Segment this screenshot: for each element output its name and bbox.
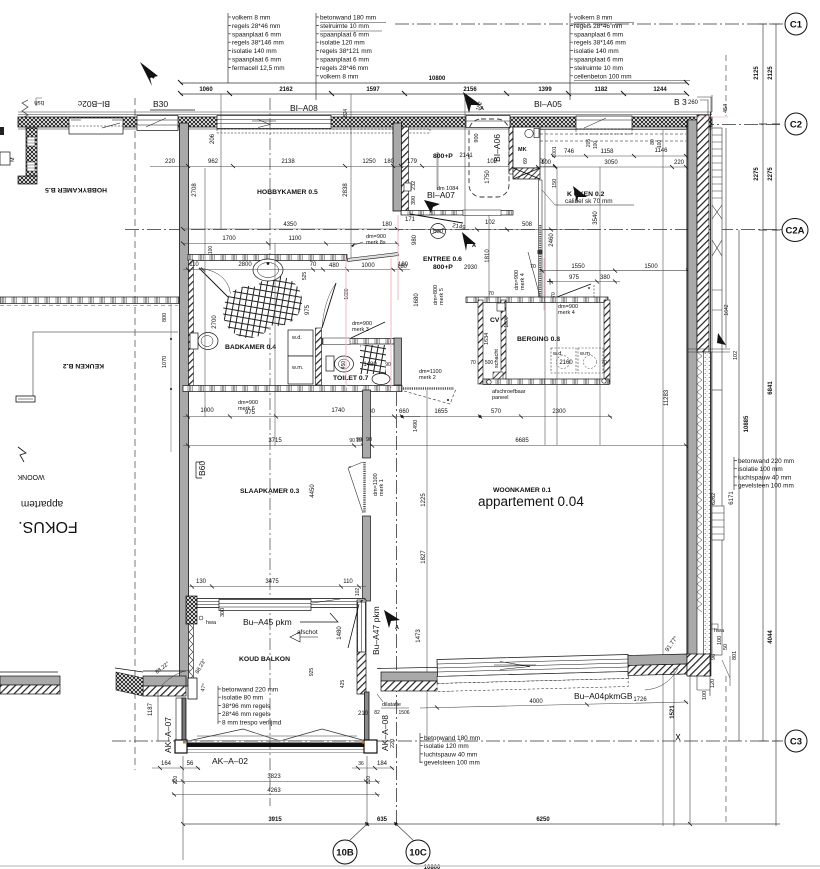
svg-text:180: 180 [384,159,395,165]
svg-text:2300: 2300 [552,409,566,415]
svg-text:746: 746 [564,149,575,155]
svg-text:BI–A06: BI–A06 [492,134,502,162]
svg-text:164: 164 [161,761,172,767]
svg-text:82: 82 [374,710,380,716]
svg-text:BI–A05: BI–A05 [534,99,562,109]
svg-text:100: 100 [541,160,552,166]
svg-text:M: M [10,157,16,162]
svg-text:afschot: afschot [297,629,318,636]
svg-text:schacht: schacht [494,349,500,368]
svg-text:3715: 3715 [268,438,282,444]
svg-text:70: 70 [530,264,536,270]
svg-text:HOBBYKAMER B.5: HOBBYKAMER B.5 [45,186,107,193]
svg-text:FOKUS.: FOKUS. [18,518,78,535]
svg-text:spaanplaat 6 mm: spaanplaat 6 mm [320,57,369,64]
svg-text:6171: 6171 [729,491,735,505]
svg-text:1490: 1490 [413,420,419,432]
svg-text:merk 8s: merk 8s [366,240,386,246]
svg-text:38*96 mm regels: 38*96 mm regels [222,703,270,710]
svg-text:A: A [472,243,476,249]
svg-text:w.d.: w.d. [291,335,302,341]
svg-text:appartem: appartem [21,498,63,509]
svg-text:KOUD BALKON: KOUD BALKON [239,656,290,663]
svg-text:220: 220 [674,160,685,166]
svg-text:regels 38*146 mm: regels 38*146 mm [232,40,284,47]
svg-text:AK–A–07: AK–A–07 [163,717,173,753]
svg-text:3915: 3915 [268,817,282,823]
svg-text:1000: 1000 [200,408,214,414]
svg-text:appartement 0.04: appartement 0.04 [478,494,584,509]
svg-text:w.m.: w.m. [579,351,592,357]
svg-text:dm 1084: dm 1084 [437,186,458,192]
svg-text:4350: 4350 [283,222,297,228]
svg-text:801: 801 [732,651,738,660]
svg-text:205: 205 [586,139,592,148]
svg-text:1634: 1634 [484,333,490,345]
svg-text:1399: 1399 [538,87,552,93]
svg-text:1827: 1827 [421,550,427,564]
svg-text:660: 660 [399,409,410,415]
svg-text:BERGING 0.8: BERGING 0.8 [517,336,560,343]
svg-text:70: 70 [601,360,607,366]
svg-text:56: 56 [187,761,194,767]
svg-text:570: 570 [491,409,502,415]
svg-text:2162: 2162 [279,87,293,93]
svg-text:2141: 2141 [459,153,473,159]
svg-text:824: 824 [343,109,349,118]
svg-text:dilatatie: dilatatie [382,702,401,708]
svg-text:1500: 1500 [644,264,658,270]
svg-text:69: 69 [523,158,529,164]
svg-text:184: 184 [377,761,388,767]
svg-text:6685: 6685 [515,438,529,444]
svg-text:180: 180 [382,222,393,228]
svg-text:1158: 1158 [601,149,615,155]
svg-text:volkern 8 mm: volkern 8 mm [232,15,270,22]
svg-text:2930: 2930 [464,265,478,271]
svg-text:stelruimte 10 mm: stelruimte 10 mm [574,65,623,72]
svg-text:1473: 1473 [416,629,422,643]
svg-text:MK: MK [518,147,527,153]
svg-text:3050: 3050 [604,160,618,166]
svg-text:C1: C1 [790,20,803,31]
svg-text:1800: 1800 [504,316,510,327]
svg-text:980: 980 [412,234,418,245]
svg-text:90: 90 [385,362,391,368]
svg-text:1700: 1700 [222,236,236,242]
svg-text:1655: 1655 [434,409,448,415]
svg-text:1100: 1100 [289,236,303,242]
svg-text:900: 900 [474,133,480,142]
svg-text:1680: 1680 [344,288,350,299]
svg-text:isolatie 120 mm: isolatie 120 mm [320,40,365,47]
svg-text:220: 220 [173,776,179,785]
svg-text:w.m.: w.m. [291,365,304,371]
svg-text:50: 50 [723,644,729,650]
svg-text:96: 96 [711,654,717,660]
svg-text:1506: 1506 [398,710,409,716]
svg-text:28*46 mm regels: 28*46 mm regels [222,711,270,718]
svg-text:1597: 1597 [366,87,380,93]
svg-text:volkern 8 mm: volkern 8 mm [574,15,612,22]
svg-text:bsh: bsh [34,99,44,105]
svg-text:10B: 10B [336,848,354,859]
svg-text:CV: CV [490,317,500,324]
svg-text:1244: 1244 [653,87,667,93]
svg-text:regels 28*46 mm: regels 28*46 mm [574,23,622,30]
svg-text:102: 102 [733,351,739,360]
svg-text:220: 220 [165,159,176,165]
svg-text:gevelsteen 100 mm: gevelsteen 100 mm [738,483,794,490]
svg-text:isolatie 120 mm: isolatie 120 mm [424,743,469,750]
svg-text:B60: B60 [197,461,207,476]
svg-text:179: 179 [407,159,418,165]
svg-text:1187: 1187 [148,702,154,716]
svg-text:spaanplaat 6 mm: spaanplaat 6 mm [232,31,281,38]
svg-text:hwa: hwa [206,620,217,626]
svg-text:2125: 2125 [754,66,760,80]
svg-text:800+P: 800+P [433,153,453,160]
svg-text:180: 180 [398,262,409,268]
svg-text:1480: 1480 [363,362,377,368]
svg-text:100: 100 [657,140,663,149]
svg-text:C3: C3 [790,737,802,748]
svg-text:isolatie 140 mm: isolatie 140 mm [232,48,277,55]
svg-text:spaanplaat 6 mm: spaanplaat 6 mm [574,57,623,64]
svg-text:4263: 4263 [267,788,281,794]
svg-text:100: 100 [717,636,723,645]
svg-text:2708: 2708 [192,183,198,197]
svg-text:1521: 1521 [670,705,676,719]
svg-text:merk 4: merk 4 [520,273,526,290]
svg-text:80: 80 [650,139,656,145]
svg-text:paneel: paneel [492,395,509,401]
svg-text:2275: 2275 [754,167,760,181]
svg-text:36: 36 [358,761,364,767]
svg-text:spaanplaat 6 mm: spaanplaat 6 mm [320,31,369,38]
svg-text:merk 2: merk 2 [419,375,436,381]
svg-text:4000: 4000 [529,699,543,705]
svg-text:206: 206 [210,133,216,144]
svg-text:2275: 2275 [768,167,774,181]
svg-text:regels 28*46 mm: regels 28*46 mm [320,65,368,72]
svg-text:betonwand 220 mm: betonwand 220 mm [222,687,278,694]
svg-text:regels 38*146 mm: regels 38*146 mm [574,40,626,47]
svg-text:102: 102 [355,588,361,597]
svg-text:regels 28*46 mm: regels 28*46 mm [232,23,280,30]
svg-text:AK–A–02: AK–A–02 [212,756,248,766]
svg-text:10885: 10885 [744,415,750,432]
svg-text:1060: 1060 [199,87,213,93]
svg-text:380: 380 [600,275,611,281]
svg-text:232: 232 [411,181,417,190]
svg-text:WOONKAMER 0.1: WOONKAMER 0.1 [493,487,551,494]
svg-text:HOBBYKAMER 0.5: HOBBYKAMER 0.5 [257,189,318,196]
svg-text:C2: C2 [790,120,802,131]
svg-text:gevelsteen 100 mm: gevelsteen 100 mm [424,760,480,767]
svg-text:975: 975 [305,304,311,315]
svg-text:merk 4: merk 4 [558,310,575,316]
svg-text:120: 120 [710,679,716,688]
svg-text:300: 300 [220,608,226,617]
svg-text:SLAAPKAMER 0.3: SLAAPKAMER 0.3 [240,488,300,495]
svg-text:90: 90 [356,437,362,443]
svg-text:500: 500 [485,360,494,366]
svg-text:800: 800 [162,313,168,322]
svg-text:betonwand 180 mm: betonwand 180 mm [424,735,480,742]
svg-text:C2A: C2A [785,226,804,237]
svg-text:2125: 2125 [768,66,774,80]
svg-text:merk 6: merk 6 [238,406,255,412]
svg-text:Bu–A45 pkm: Bu–A45 pkm [243,617,292,627]
svg-text:210: 210 [358,711,369,717]
svg-text:BADKAMER 0.4: BADKAMER 0.4 [225,344,276,351]
svg-text:volkern 8 mm: volkern 8 mm [320,73,358,80]
svg-text:1070: 1070 [162,356,168,368]
svg-text:3540: 3540 [593,211,599,225]
svg-text:1480: 1480 [337,626,343,640]
svg-text:isolatie 140 mm: isolatie 140 mm [574,48,619,55]
svg-text:1740: 1740 [331,408,345,414]
svg-text:1680: 1680 [414,293,420,307]
svg-text:70: 70 [470,360,476,366]
svg-text:merk 1: merk 1 [379,479,385,496]
svg-text:1550: 1550 [571,264,585,270]
svg-text:B30: B30 [153,99,168,109]
svg-text:2800: 2800 [238,262,252,268]
svg-text:B 3: B 3 [674,97,687,107]
svg-text:2838: 2838 [343,183,349,197]
svg-text:100: 100 [702,691,708,700]
svg-text:3823: 3823 [267,774,281,780]
svg-text:cellenbeton 100 mm: cellenbeton 100 mm [574,73,632,80]
svg-text:260: 260 [688,100,699,106]
svg-text:10800: 10800 [429,76,446,82]
svg-text:A: A [395,625,399,631]
svg-text:TOILET 0.7: TOILET 0.7 [333,375,369,382]
svg-text:stelruimte 10 mm: stelruimte 10 mm [320,23,369,30]
svg-text:2460: 2460 [549,233,555,247]
svg-text:508: 508 [522,222,533,228]
svg-text:3475: 3475 [265,579,279,585]
svg-text:spaanplaat 6 mm: spaanplaat 6 mm [574,31,623,38]
svg-text:w.d.: w.d. [552,351,563,357]
svg-text:4044: 4044 [768,630,774,644]
svg-text:635: 635 [377,817,388,823]
svg-text:480: 480 [329,263,340,269]
svg-text:isolatie 100 mm: isolatie 100 mm [738,466,783,473]
svg-text:2160: 2160 [559,360,573,366]
svg-text:2138: 2138 [281,159,295,165]
svg-text:800+P: 800+P [433,264,453,271]
svg-text:390: 390 [411,196,417,205]
svg-text:70: 70 [310,262,317,268]
svg-text:1000: 1000 [361,263,375,269]
svg-text:6841: 6841 [768,381,774,395]
svg-text:171: 171 [405,217,416,223]
svg-text:WOONK: WOONK [17,473,45,480]
svg-text:110: 110 [189,262,199,268]
svg-text:130: 130 [196,579,207,585]
svg-text:luchtspauw 40 mm: luchtspauw 40 mm [738,474,791,481]
svg-text:2156: 2156 [463,87,477,93]
svg-text:454: 454 [723,104,729,113]
svg-text:betonwand 180 mm: betonwand 180 mm [320,15,376,22]
svg-text:1250: 1250 [362,159,376,165]
svg-text:AK–A–08: AK–A–08 [380,715,390,751]
svg-text:betonwand 220 mm: betonwand 220 mm [738,458,794,465]
svg-text:luchtspauw 40 mm: luchtspauw 40 mm [424,751,477,758]
svg-text:8 mm trespo verlijmd: 8 mm trespo verlijmd [222,719,282,726]
svg-text:102: 102 [485,220,496,226]
svg-text:4450: 4450 [310,484,316,498]
svg-text:B30: B30 [433,229,443,235]
svg-text:fermacell 12,5 mm: fermacell 12,5 mm [232,65,285,72]
svg-text:ENTREE 0.6: ENTREE 0.6 [423,256,462,263]
svg-text:6262: 6262 [711,493,717,505]
svg-text:2700: 2700 [212,315,218,329]
svg-text:925: 925 [309,668,315,677]
svg-text:merk 3: merk 3 [352,327,369,333]
svg-text:90: 90 [366,437,372,443]
svg-text:525: 525 [302,272,308,281]
svg-text:1182: 1182 [594,87,608,93]
svg-text:1726: 1726 [633,697,647,703]
svg-text:1225: 1225 [421,493,427,507]
svg-text:220: 220 [390,739,396,748]
svg-text:spaanplaat 6 mm: spaanplaat 6 mm [232,57,281,64]
svg-text:BI–A08: BI–A08 [290,103,318,113]
svg-text:70: 70 [551,292,557,298]
svg-text:isolatie 80 mm: isolatie 80 mm [222,695,263,702]
svg-text:975: 975 [569,275,580,281]
svg-text:merk 5: merk 5 [439,288,445,305]
svg-text:BI–B02c: BI–B02c [77,99,110,109]
svg-text:1810: 1810 [485,249,491,263]
svg-text:Bu–A04pkmGB: Bu–A04pkmGB [574,691,633,701]
svg-text:11283: 11283 [664,389,670,406]
svg-text:regels 38*121 mm: regels 38*121 mm [320,48,372,55]
svg-text:100: 100 [593,141,599,150]
svg-text:KEUKEN B.2: KEUKEN B.2 [63,362,104,369]
svg-text:6250: 6250 [536,817,550,823]
svg-text:110: 110 [343,579,353,585]
svg-text:10C: 10C [409,848,427,859]
svg-text:Bu–A47 pkm: Bu–A47 pkm [371,606,381,655]
svg-text:1642: 1642 [724,304,730,315]
svg-text:100: 100 [208,246,214,255]
svg-text:962: 962 [208,159,219,165]
svg-text:1750: 1750 [485,170,491,184]
svg-text:425: 425 [340,680,346,689]
svg-text:calibel sk 70 mm: calibel sk 70 mm [565,198,613,205]
